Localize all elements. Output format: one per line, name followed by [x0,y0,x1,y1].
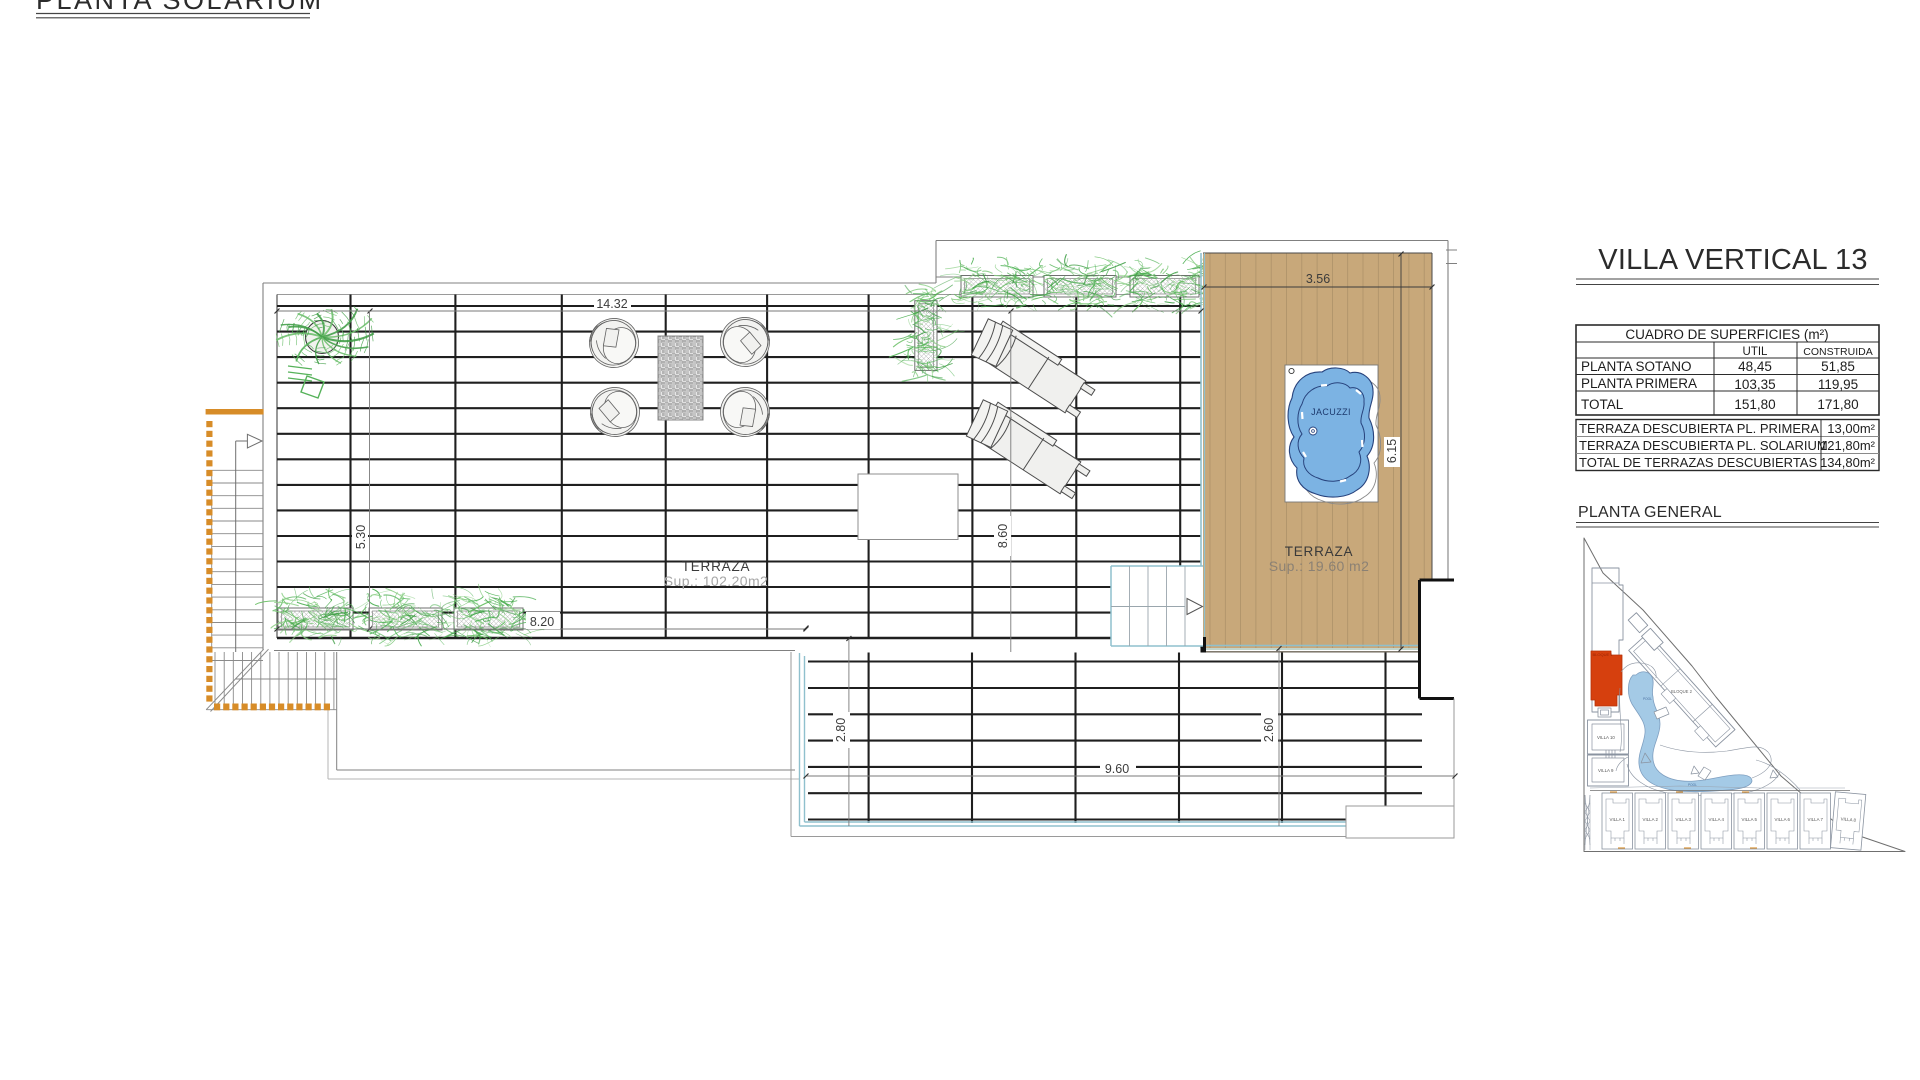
svg-text:BLOQUE 1: BLOQUE 1 [1593,652,1614,657]
svg-text:PLANTA PRIMERA: PLANTA PRIMERA [1581,376,1697,391]
svg-text:8.20: 8.20 [530,615,554,629]
svg-text:VILLA 10: VILLA 10 [1597,735,1615,740]
svg-text:VILLA 1: VILLA 1 [1610,817,1626,822]
svg-text:PLANTA SOTANO: PLANTA SOTANO [1581,359,1692,374]
svg-text:VILLA 6: VILLA 6 [1775,817,1791,822]
svg-text:TERRAZA: TERRAZA [1285,544,1354,559]
svg-text:13,00m²: 13,00m² [1827,421,1875,436]
svg-text:JACUZZI: JACUZZI [1311,407,1351,417]
svg-text:103,35: 103,35 [1734,377,1775,392]
svg-text:6.15: 6.15 [1385,439,1399,463]
svg-text:VILLA 3: VILLA 3 [1676,817,1692,822]
svg-text:TOTAL: TOTAL [1581,397,1624,412]
svg-text:TOTAL DE TERRAZAS DESCUBIERTAS: TOTAL DE TERRAZAS DESCUBIERTAS [1579,455,1817,470]
svg-text:VILLA VERTICAL 13: VILLA VERTICAL 13 [1598,244,1867,276]
svg-text:BLOQUE 2: BLOQUE 2 [1671,689,1693,694]
svg-text:Sup.: 102.20m2: Sup.: 102.20m2 [664,573,768,589]
svg-text:VILLA 5: VILLA 5 [1742,817,1758,822]
svg-text:14.32: 14.32 [596,297,627,311]
svg-text:CUADRO DE SUPERFICIES (m²): CUADRO DE SUPERFICIES (m²) [1625,327,1828,342]
svg-text:TERRAZA DESCUBIERTA PL. PRIMER: TERRAZA DESCUBIERTA PL. PRIMERA [1579,421,1819,436]
svg-text:9.60: 9.60 [1105,762,1129,776]
svg-text:121,80m²: 121,80m² [1820,438,1876,453]
svg-text:171,80: 171,80 [1817,397,1858,412]
svg-text:51,85: 51,85 [1821,359,1855,374]
svg-text:VILLA 2: VILLA 2 [1643,817,1659,822]
svg-text:VILLA 9: VILLA 9 [1598,768,1614,773]
svg-text:5.30: 5.30 [354,525,368,549]
svg-text:TERRAZA DESCUBIERTA PL. SOLARI: TERRAZA DESCUBIERTA PL. SOLARIUM [1579,438,1828,453]
svg-text:134,80m²: 134,80m² [1820,455,1876,470]
svg-text:151,80: 151,80 [1734,397,1775,412]
svg-text:8.60: 8.60 [996,524,1010,548]
svg-text:2.80: 2.80 [834,718,848,742]
svg-text:Sup.: 19.60 m2: Sup.: 19.60 m2 [1269,558,1370,574]
svg-text:CONSTRUIDA: CONSTRUIDA [1803,346,1872,358]
svg-text:POOL: POOL [1643,697,1652,701]
svg-text:2.60: 2.60 [1262,718,1276,742]
svg-text:VILLA 4: VILLA 4 [1709,817,1725,822]
svg-text:PLANTA GENERAL: PLANTA GENERAL [1578,504,1722,521]
svg-text:PLANTA SOLARIUM: PLANTA SOLARIUM [36,0,324,15]
svg-text:3.56: 3.56 [1306,272,1330,286]
svg-text:UTIL: UTIL [1743,346,1769,358]
svg-text:119,95: 119,95 [1818,377,1858,392]
svg-text:VILLA 7: VILLA 7 [1808,817,1824,822]
svg-text:TERRAZA: TERRAZA [682,559,751,574]
svg-text:48,45: 48,45 [1738,359,1772,374]
